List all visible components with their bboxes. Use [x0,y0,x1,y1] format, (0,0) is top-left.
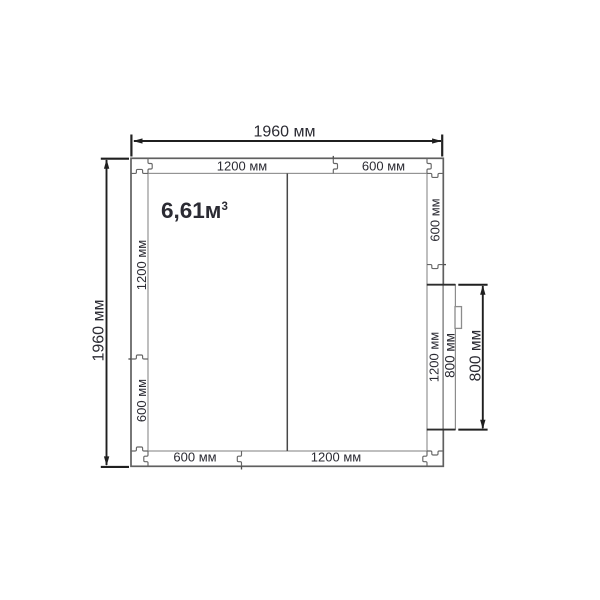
svg-text:1200 мм: 1200 мм [427,332,442,382]
svg-text:1960 мм: 1960 мм [91,299,108,361]
svg-text:1200 мм: 1200 мм [217,159,267,174]
svg-text:600 мм: 600 мм [134,379,149,422]
svg-text:1960 мм: 1960 мм [253,123,315,140]
svg-text:800 мм: 800 мм [468,330,485,381]
svg-text:1200 мм: 1200 мм [311,450,361,465]
svg-text:6,61м3: 6,61м3 [161,198,228,223]
svg-text:600 мм: 600 мм [428,198,443,241]
svg-text:600 мм: 600 мм [173,450,216,465]
svg-text:600 мм: 600 мм [362,159,405,174]
svg-text:1200 мм: 1200 мм [134,240,149,290]
svg-text:800 мм: 800 мм [443,333,458,378]
